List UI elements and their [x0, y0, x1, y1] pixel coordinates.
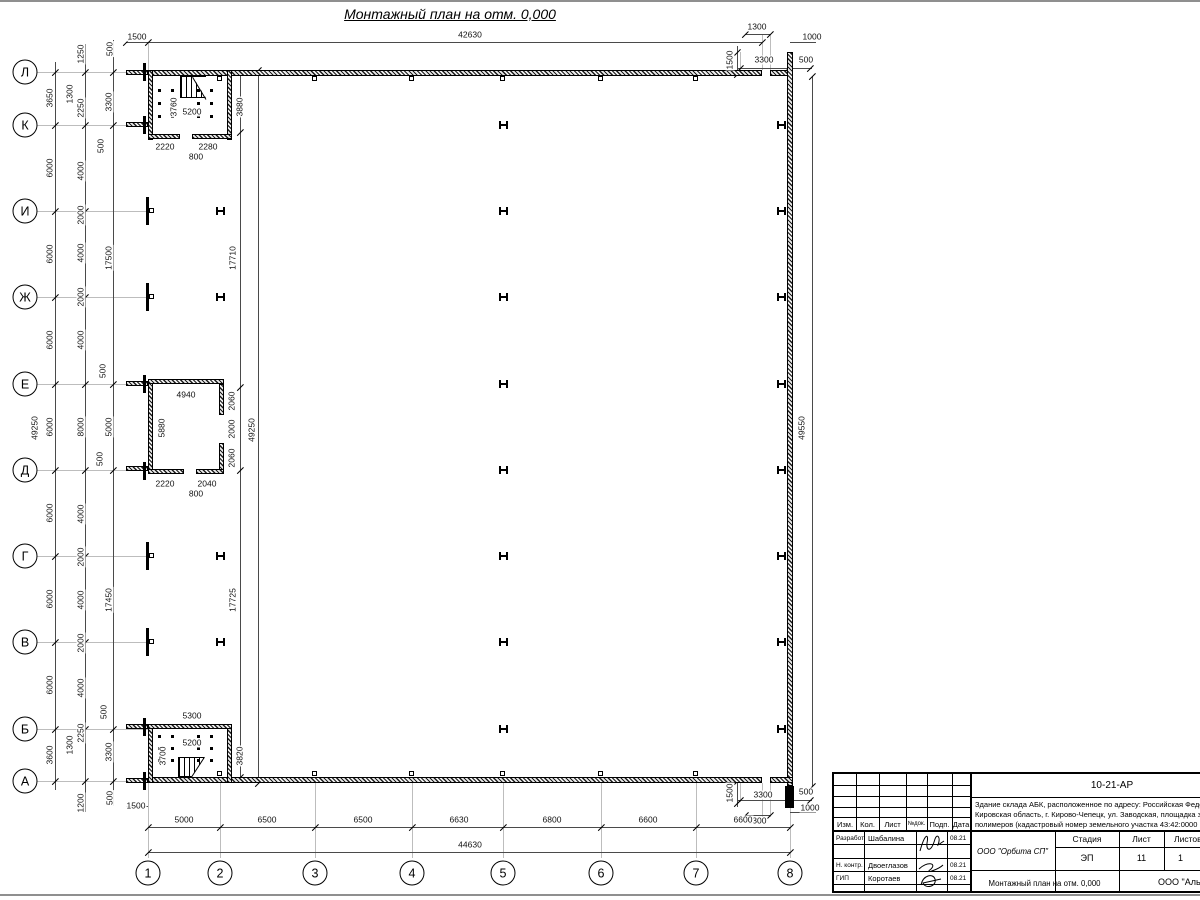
column-base [217, 76, 222, 81]
axis-bubble-2: 2 [208, 861, 233, 886]
dim-label: 6000 [46, 589, 55, 610]
stub-plate [143, 116, 146, 134]
wall-right-cap [785, 786, 794, 808]
steel-column-icon [216, 638, 225, 646]
dim-line [126, 42, 762, 43]
tl-element [834, 871, 970, 872]
steel-column-icon [777, 552, 786, 560]
column-base [500, 771, 505, 776]
column-base [598, 76, 603, 81]
tb-col-list: Лист [879, 820, 906, 829]
axis-bubble-К: К [13, 113, 38, 138]
dim-label: 500 [798, 56, 814, 65]
axis-bubble-7: 7 [684, 861, 709, 886]
fachwerk-base [149, 553, 154, 558]
steel-column-icon [499, 552, 508, 560]
dim-label: 5300 [182, 712, 203, 721]
dim-label: 500 [106, 790, 115, 806]
dim-label: 1000 [800, 804, 821, 813]
column-base [409, 771, 414, 776]
dim-label: 1500 [127, 33, 148, 42]
dim-label: 1250 [77, 44, 86, 65]
stairroom1-wall-bottom-b [192, 134, 232, 139]
dim-line [737, 68, 812, 69]
dim-label: 2000 [77, 205, 86, 226]
tb-col-kol: Кол. [856, 820, 879, 829]
dim-line [240, 75, 241, 778]
element [920, 836, 944, 851]
title-block: Изм. Кол. Лист №док. Подп. Дата Разработ… [832, 772, 1200, 893]
dim-label: 2040 [197, 480, 218, 489]
column-dot [210, 747, 213, 750]
stairroom1-wall-left [148, 70, 153, 140]
dim-label: 2000 [228, 419, 237, 440]
element [919, 864, 943, 887]
axis-bubble-И: И [13, 199, 38, 224]
dim-label: 5200 [182, 108, 203, 117]
column-dot [210, 115, 213, 118]
dim-label: 2220 [155, 480, 176, 489]
column-dot [171, 747, 174, 750]
dim-label: 6000 [46, 244, 55, 265]
dim-label: 800 [188, 490, 204, 499]
steel-column-icon [499, 121, 508, 129]
dim-label: 3300 [105, 92, 114, 113]
drawing-title: Монтажный план на отм. 0,000 [290, 6, 610, 22]
dim-label: 5000 [105, 417, 114, 438]
dim-label: 6600 [733, 816, 754, 825]
signature [917, 831, 947, 857]
tb-name-3: Коротаев [868, 874, 916, 883]
dim-label: 2000 [77, 547, 86, 568]
dim-label: 4000 [77, 590, 86, 611]
tb-sheet-value: 11 [1119, 854, 1164, 863]
dim-label: 6630 [449, 816, 470, 825]
tb-name-2: Двоеглазов [868, 861, 916, 870]
wall-top [148, 70, 762, 76]
dim-label: 6000 [46, 158, 55, 179]
tb-col-data: Дата [952, 820, 970, 829]
dim-label: 17450 [105, 587, 114, 613]
axis-line-6 [601, 783, 602, 858]
dim-label: 1300 [66, 735, 75, 756]
column-dot [171, 735, 174, 738]
tb-desc-line3: полимеров (кадастровый номер земельного … [975, 820, 1200, 829]
column-dot [210, 89, 213, 92]
steel-column-icon [777, 207, 786, 215]
dim-label: 17500 [105, 245, 114, 271]
dim-label: 42630 [457, 31, 483, 40]
dim-label: 44630 [457, 841, 483, 850]
dim-label: 500 [99, 363, 108, 379]
stub-plate [143, 718, 146, 736]
column-dot [158, 115, 161, 118]
column-dot [158, 102, 161, 105]
stairs-icon [180, 76, 206, 98]
steel-column-icon [216, 293, 225, 301]
axis-bubble-4: 4 [400, 861, 425, 886]
steel-column-icon [777, 380, 786, 388]
midroom-wall-bottom-b [196, 469, 224, 474]
column-dot [171, 759, 174, 762]
dim-label: 3760 [170, 97, 179, 118]
axis-bubble-Г: Г [13, 544, 38, 569]
column-base [312, 76, 317, 81]
steel-column-icon [216, 552, 225, 560]
dim-label: 49250 [31, 415, 40, 441]
dim-label: 3300 [754, 56, 775, 65]
dim-label: 4000 [77, 330, 86, 351]
dim-label: 3650 [46, 88, 55, 109]
axis-line-3 [315, 783, 316, 858]
tb-name-1: Шабалина [868, 834, 916, 843]
stairroom1-wall-right [227, 70, 232, 140]
tb-date-2: 08.21 [950, 861, 970, 870]
wall-bottom [148, 777, 762, 783]
signature [917, 859, 947, 891]
dim-label: 3300 [105, 742, 114, 763]
tb-sheet-label: Лист [1119, 835, 1164, 844]
axis-bubble-А: А [13, 769, 38, 794]
steel-column-icon [499, 293, 508, 301]
fachwerk-base [149, 208, 154, 213]
axis-bubble-6: 6 [589, 861, 614, 886]
dim-label: 2000 [77, 287, 86, 308]
axis-line-4 [412, 783, 413, 858]
steel-column-icon [499, 725, 508, 733]
column-base [693, 771, 698, 776]
dim-label: 6500 [353, 816, 374, 825]
tb-desc-line2: Кировская область, г. Кирово-Чепецк, ул.… [975, 810, 1200, 819]
stub-plate [143, 375, 146, 393]
steel-column-icon [777, 293, 786, 301]
tl-element [834, 830, 1200, 832]
stairroom2-wall-left [148, 724, 153, 783]
extension-line [770, 34, 771, 72]
stub-plate [143, 772, 146, 790]
dim-label: 5880 [158, 418, 167, 439]
dim-label: 4000 [77, 504, 86, 525]
tl-element [834, 807, 970, 808]
axis-bubble-1: 1 [136, 861, 161, 886]
tb-code: 10-21-АР [970, 781, 1200, 790]
column-dot [197, 759, 200, 762]
stairroom2-wall-right [227, 724, 232, 783]
dim-label: 2060 [228, 448, 237, 469]
extension-line [148, 42, 149, 70]
dim-label: 1000 [802, 33, 823, 42]
tb-desc-line1: Здание склада АБК, расположенное по адре… [975, 800, 1200, 809]
tb-stage-label: Стадия [1055, 835, 1119, 844]
dim-label: 2000 [77, 633, 86, 654]
column-base [693, 76, 698, 81]
dim-label: 1200 [77, 793, 86, 814]
plan-canvas: ЛКИЖЕДГВБА123456781500426301300100033005… [0, 0, 1200, 900]
stub-plate [143, 462, 146, 480]
axis-bubble-8: 8 [778, 861, 803, 886]
fachwerk-base [149, 639, 154, 644]
midroom-wall-right-a [219, 384, 224, 415]
dim-label: 3600 [46, 745, 55, 766]
dim-label: 1300 [747, 23, 768, 32]
dim-label: 500 [96, 451, 105, 467]
tl-element [864, 832, 865, 893]
dim-label: 800 [188, 153, 204, 162]
dim-label: 4000 [77, 161, 86, 182]
dim-label: 1300 [66, 84, 75, 105]
dim-line [737, 800, 812, 801]
dim-label: 8000 [77, 417, 86, 438]
fachwerk-base [149, 294, 154, 299]
dim-label: 17710 [229, 245, 238, 271]
tb-date-3: 08.21 [950, 874, 970, 883]
dim-label: 4000 [77, 678, 86, 699]
axis-bubble-Е: Е [13, 372, 38, 397]
midroom-wall-left [148, 379, 153, 474]
column-dot [158, 89, 161, 92]
dim-label: 1500 [126, 802, 147, 811]
column-dot [158, 735, 161, 738]
midroom-wall-bottom-a [148, 469, 184, 474]
dim-line [812, 76, 813, 786]
axis-bubble-Б: Б [13, 717, 38, 742]
axis-line-2 [220, 783, 221, 858]
dim-label: 500 [798, 788, 814, 797]
tl-element [1055, 847, 1200, 848]
dim-label: 4940 [176, 391, 197, 400]
tb-col-ndok: №док. [906, 820, 927, 829]
tl-element [834, 796, 970, 797]
dim-label: 6800 [542, 816, 563, 825]
dim-tick [807, 65, 814, 72]
column-dot [210, 735, 213, 738]
tb-date-1: 08.21 [950, 834, 970, 843]
axis-bubble-3: 3 [303, 861, 328, 886]
dim-label: 500 [106, 41, 115, 57]
column-dot [210, 759, 213, 762]
dim-label: 2250 [77, 723, 86, 744]
axis-line-1 [148, 783, 149, 858]
dim-label: 3300 [753, 791, 774, 800]
tl-element [834, 858, 970, 859]
column-base [312, 771, 317, 776]
tb-sheets-label: Листов [1174, 835, 1200, 844]
tl-element [1164, 832, 1165, 870]
axis-bubble-Ж: Ж [13, 285, 38, 310]
tl-element [834, 844, 970, 845]
tl-element [834, 884, 970, 885]
tl-element [970, 797, 1200, 798]
column-base [217, 771, 222, 776]
dim-line [745, 34, 770, 35]
tb-role-1: Разработал [836, 834, 864, 843]
dim-line [148, 852, 790, 853]
steel-column-icon [777, 638, 786, 646]
steel-column-icon [216, 207, 225, 215]
tb-col-izm: Изм. [834, 820, 856, 829]
axis-line-7 [696, 783, 697, 858]
dim-label: 500 [100, 704, 109, 720]
column-base [409, 76, 414, 81]
tl-element [834, 785, 970, 786]
steel-column-icon [499, 207, 508, 215]
tl-element [970, 870, 1200, 871]
dim-label: 5000 [174, 816, 195, 825]
dim-line [55, 62, 56, 790]
stairroom2-wall-top [148, 724, 232, 729]
dim-label: 1500 [726, 783, 735, 804]
steel-column-icon [499, 380, 508, 388]
steel-column-icon [499, 466, 508, 474]
dim-label: 6000 [46, 503, 55, 524]
dim-label: 2060 [228, 391, 237, 412]
dim-label: 1500 [726, 50, 735, 71]
stub-plate [143, 63, 146, 81]
dim-label: 3820 [236, 746, 245, 767]
wall-right [787, 52, 793, 786]
tl-element [834, 817, 970, 818]
tb-doc-title: Монтажный план на отм. 0,000 [970, 879, 1119, 888]
dim-label: 500 [97, 138, 106, 154]
axis-bubble-Л: Л [13, 60, 38, 85]
column-base [500, 76, 505, 81]
tb-col-podp: Подп. [927, 820, 952, 829]
dim-line [258, 70, 259, 783]
steel-column-icon [777, 121, 786, 129]
column-dot [171, 89, 174, 92]
axis-line-5 [503, 783, 504, 858]
tb-role-2: Н. контр. [836, 861, 864, 870]
dim-label: 4000 [77, 243, 86, 264]
column-dot [197, 89, 200, 92]
dim-label: 2280 [198, 143, 219, 152]
dim-label: 6500 [257, 816, 278, 825]
steel-column-icon [777, 466, 786, 474]
dim-label: 17725 [229, 587, 238, 613]
dim-tick [767, 812, 774, 819]
dim-label: 5200 [182, 739, 203, 748]
tb-sheets-value: 1 [1178, 854, 1200, 863]
steel-column-icon [499, 638, 508, 646]
sheet: { "sheet": { "title": "Монтажный план на… [0, 0, 1200, 900]
dim-label: 3880 [236, 97, 245, 118]
tb-org2: ООО "Альянс [1119, 878, 1200, 887]
dim-label: 6000 [46, 417, 55, 438]
stairs-icon [178, 757, 204, 777]
dim-label: 3700 [159, 746, 168, 767]
stairroom1-wall-bottom-a [148, 134, 180, 139]
column-base [598, 771, 603, 776]
dim-label: 6600 [638, 816, 659, 825]
steel-column-icon [777, 725, 786, 733]
axis-bubble-В: В [13, 630, 38, 655]
dim-line [790, 42, 816, 43]
axis-bubble-Д: Д [13, 458, 38, 483]
tb-stage-value: ЭП [1055, 854, 1119, 863]
dim-label: 6000 [46, 675, 55, 696]
dim-label: 2220 [155, 143, 176, 152]
axis-bubble-5: 5 [491, 861, 516, 886]
tb-role-3: ГИП [836, 874, 864, 883]
tl-element [947, 832, 948, 893]
dim-label: 2250 [77, 98, 86, 119]
wall-bottom-right-stub [770, 777, 793, 783]
midroom-wall-top [148, 379, 224, 384]
tl-element [970, 774, 972, 893]
dim-label: 6000 [46, 330, 55, 351]
dim-label: 49250 [248, 417, 257, 443]
dim-label: 49550 [798, 415, 807, 441]
tb-org1: ООО "Орбита СП" [970, 847, 1055, 856]
column-dot [210, 102, 213, 105]
column-dot [197, 102, 200, 105]
